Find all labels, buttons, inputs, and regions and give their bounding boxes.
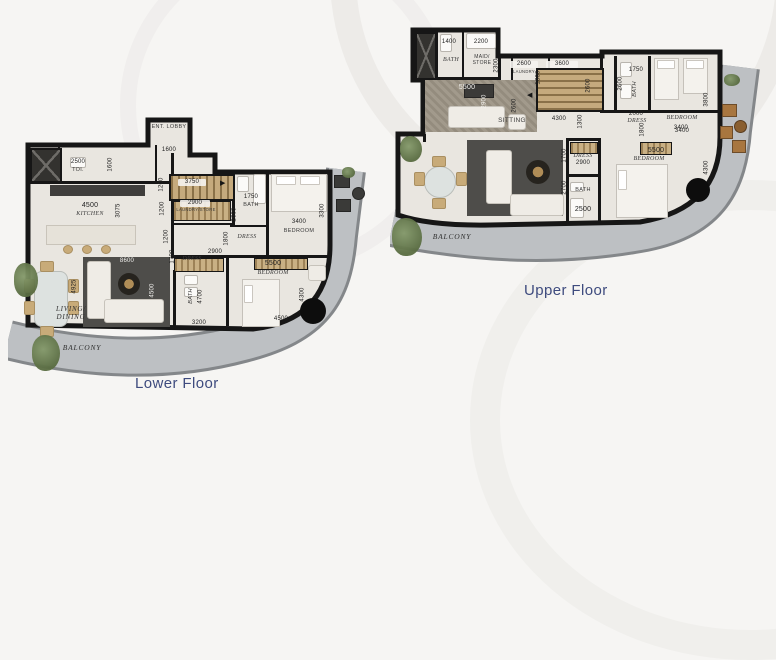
lower-floor-plan: ENT. LOBBY 1600 2500 TOI. 1600 4500 KITC…: [8, 115, 373, 380]
dim-bedroom2: 5500: [642, 147, 670, 154]
dim-dress2-v: 1700: [170, 244, 177, 270]
kitchen-counter: [50, 185, 145, 196]
wall: [598, 138, 601, 222]
sofa: [510, 194, 564, 216]
dim-kitchen-v: 3075: [116, 198, 123, 224]
dim-bath1-v: 2600: [232, 202, 239, 228]
room-label-bedroom1: BEDROOM: [658, 115, 706, 121]
dim-toi-v: 1600: [108, 152, 115, 178]
terrace-chair: [722, 104, 737, 117]
dim-laundry: 2900: [180, 200, 210, 207]
dim-dress1-v: 1800: [224, 226, 231, 252]
dim-stairs: 3750: [178, 179, 206, 186]
upper-floor-plan: 1400 BATH 2200 MAID/ STORE 2300 2600 LAU…: [390, 22, 776, 272]
bath-fixture: [237, 176, 249, 192]
plant: [342, 167, 355, 178]
dim-toi: 2500: [60, 159, 96, 166]
terrace-chair: [336, 199, 351, 212]
sofa: [448, 106, 505, 128]
dim-dress2-v: 1700: [562, 143, 569, 169]
wall: [566, 138, 600, 141]
dim-stairs-v: 2600: [586, 73, 593, 99]
wall: [511, 56, 513, 80]
dim-bath1: 1750: [238, 194, 264, 201]
dining-chair: [432, 198, 446, 209]
wall: [648, 56, 651, 111]
dim-laundry: 2600: [510, 61, 538, 68]
room-label-sitting: SITTING: [492, 118, 532, 124]
staircase: [536, 68, 604, 112]
wall: [600, 110, 720, 113]
dim-bath2: 3200: [184, 320, 214, 327]
stool: [82, 245, 92, 254]
room-label-toi: TOI.: [64, 167, 92, 173]
dining-chair: [414, 172, 425, 186]
room-label-laundry: LAUNDRY/STORE: [174, 208, 218, 213]
dim-laundry-v: 1200: [160, 196, 167, 222]
room-label-bedroom2: BEDROOM: [626, 156, 672, 162]
dim-hall-v2: 2600: [512, 93, 519, 119]
room-label-bath1: BATH: [438, 58, 464, 63]
dim-bedroom2-v: 4300: [300, 282, 307, 308]
dining-table: [424, 166, 456, 198]
plant: [32, 335, 60, 371]
room-label-bath3: BATH: [570, 187, 596, 193]
dim-bedroom2-b: 4500: [266, 316, 296, 323]
dim-hall: 4300: [544, 116, 574, 123]
pillow: [657, 60, 675, 69]
room-label-maid: MAID/ STORE: [468, 54, 496, 66]
round-chair: [526, 160, 550, 184]
service-shaft: [415, 32, 437, 80]
room-label-living: LIVING/ DINING: [48, 305, 94, 321]
room-label-bath1: BATH: [238, 202, 264, 208]
lower-floor-caption: Lower Floor: [135, 375, 219, 392]
dim-bath2: 1750: [624, 67, 648, 74]
plant: [400, 136, 422, 162]
upper-floor-caption: Upper Floor: [524, 282, 608, 299]
dim-laundry-v: 1800: [536, 65, 543, 91]
dining-chair: [24, 301, 35, 315]
room-label-bedroom2: BEDROOM: [250, 270, 296, 276]
room-label-bath2: BATH: [188, 283, 194, 309]
room-label-bath2: BATH: [632, 76, 638, 102]
dim-bath3: 2500: [570, 206, 596, 213]
dim-ent-lobby: 1600: [154, 147, 184, 154]
stool: [63, 245, 73, 254]
stairs-arrow-icon: ◀: [527, 92, 532, 99]
dim-living-v2: 4500: [150, 278, 157, 304]
pillow: [618, 170, 627, 190]
dim-bath2-v: 4700: [198, 284, 205, 310]
wall: [173, 270, 176, 327]
round-chair: [118, 273, 140, 295]
dim-hall-v: 1300: [578, 109, 585, 135]
pillow: [300, 176, 320, 185]
terrace-table: [352, 187, 365, 200]
round-feature: [686, 178, 710, 202]
service-shaft: [30, 148, 62, 183]
kitchen-island: [46, 225, 136, 245]
dim-stairs-v: 1200: [159, 172, 166, 198]
wall: [566, 174, 600, 177]
dim-bedroom1-v: 3300: [320, 198, 327, 224]
sofa: [486, 150, 512, 204]
dim-living: 8600: [112, 258, 142, 265]
wall: [226, 258, 229, 326]
terrace-chair: [720, 126, 733, 139]
wall: [266, 172, 269, 255]
wall: [423, 134, 426, 142]
dim-kitchen: 4500: [70, 202, 110, 209]
armchair: [308, 265, 326, 281]
wall: [462, 30, 464, 78]
plant: [724, 74, 740, 86]
dim-sitting: 5500: [452, 84, 482, 91]
dim-bedroom1-v: 3800: [704, 87, 711, 113]
dim-maid: 2200: [466, 39, 496, 46]
dim-bedroom2: 5500: [258, 260, 288, 267]
room-label-dress2: DRESS: [178, 256, 206, 262]
dim-bedroom2-v: 4300: [704, 155, 711, 181]
pillow: [686, 60, 704, 69]
room-label-dress1: DRESS: [232, 234, 262, 240]
dim-living-v: 4925: [72, 274, 79, 300]
dim-bath1: 1400: [436, 39, 462, 46]
dim-stairs: 3600: [546, 61, 578, 68]
floorplan-sheet: { "captions": { "lower": "Lower Floor", …: [0, 0, 776, 418]
dim-bedroom1: 3400: [284, 219, 314, 226]
plant: [14, 263, 38, 297]
dim-maid-v: 2300: [494, 53, 501, 79]
dim-bath3-v: 2700: [562, 175, 569, 201]
room-label-ent-lobby: ENT. LOBBY: [150, 124, 188, 130]
dim-bath2-v: 2600: [618, 71, 625, 97]
terrace-table: [734, 120, 747, 133]
pillow: [244, 285, 253, 303]
room-label-bedroom1: BEDROOM: [274, 228, 324, 234]
pillow: [276, 176, 296, 185]
dining-chair: [40, 261, 54, 272]
room-label-kitchen: KITCHEN: [68, 211, 112, 217]
dim-bedroom2-b: 3400: [668, 128, 696, 135]
stairs-arrow-icon: ▶: [220, 180, 225, 187]
dining-chair: [456, 172, 467, 186]
room-label-dress2: DRESS: [570, 154, 596, 159]
room-label-balcony: BALCONY: [52, 343, 112, 352]
room-label-balcony: BALCONY: [424, 232, 480, 241]
dining-chair: [432, 156, 446, 167]
dim-dress2: 2900: [202, 249, 228, 256]
dim-dress1-v: 1800: [640, 117, 647, 143]
dim-sitting-v: 2900: [482, 89, 489, 115]
terrace-chair: [732, 140, 746, 153]
dim-dress2: 2900: [570, 160, 596, 167]
stool: [101, 245, 111, 254]
plant: [392, 218, 422, 256]
